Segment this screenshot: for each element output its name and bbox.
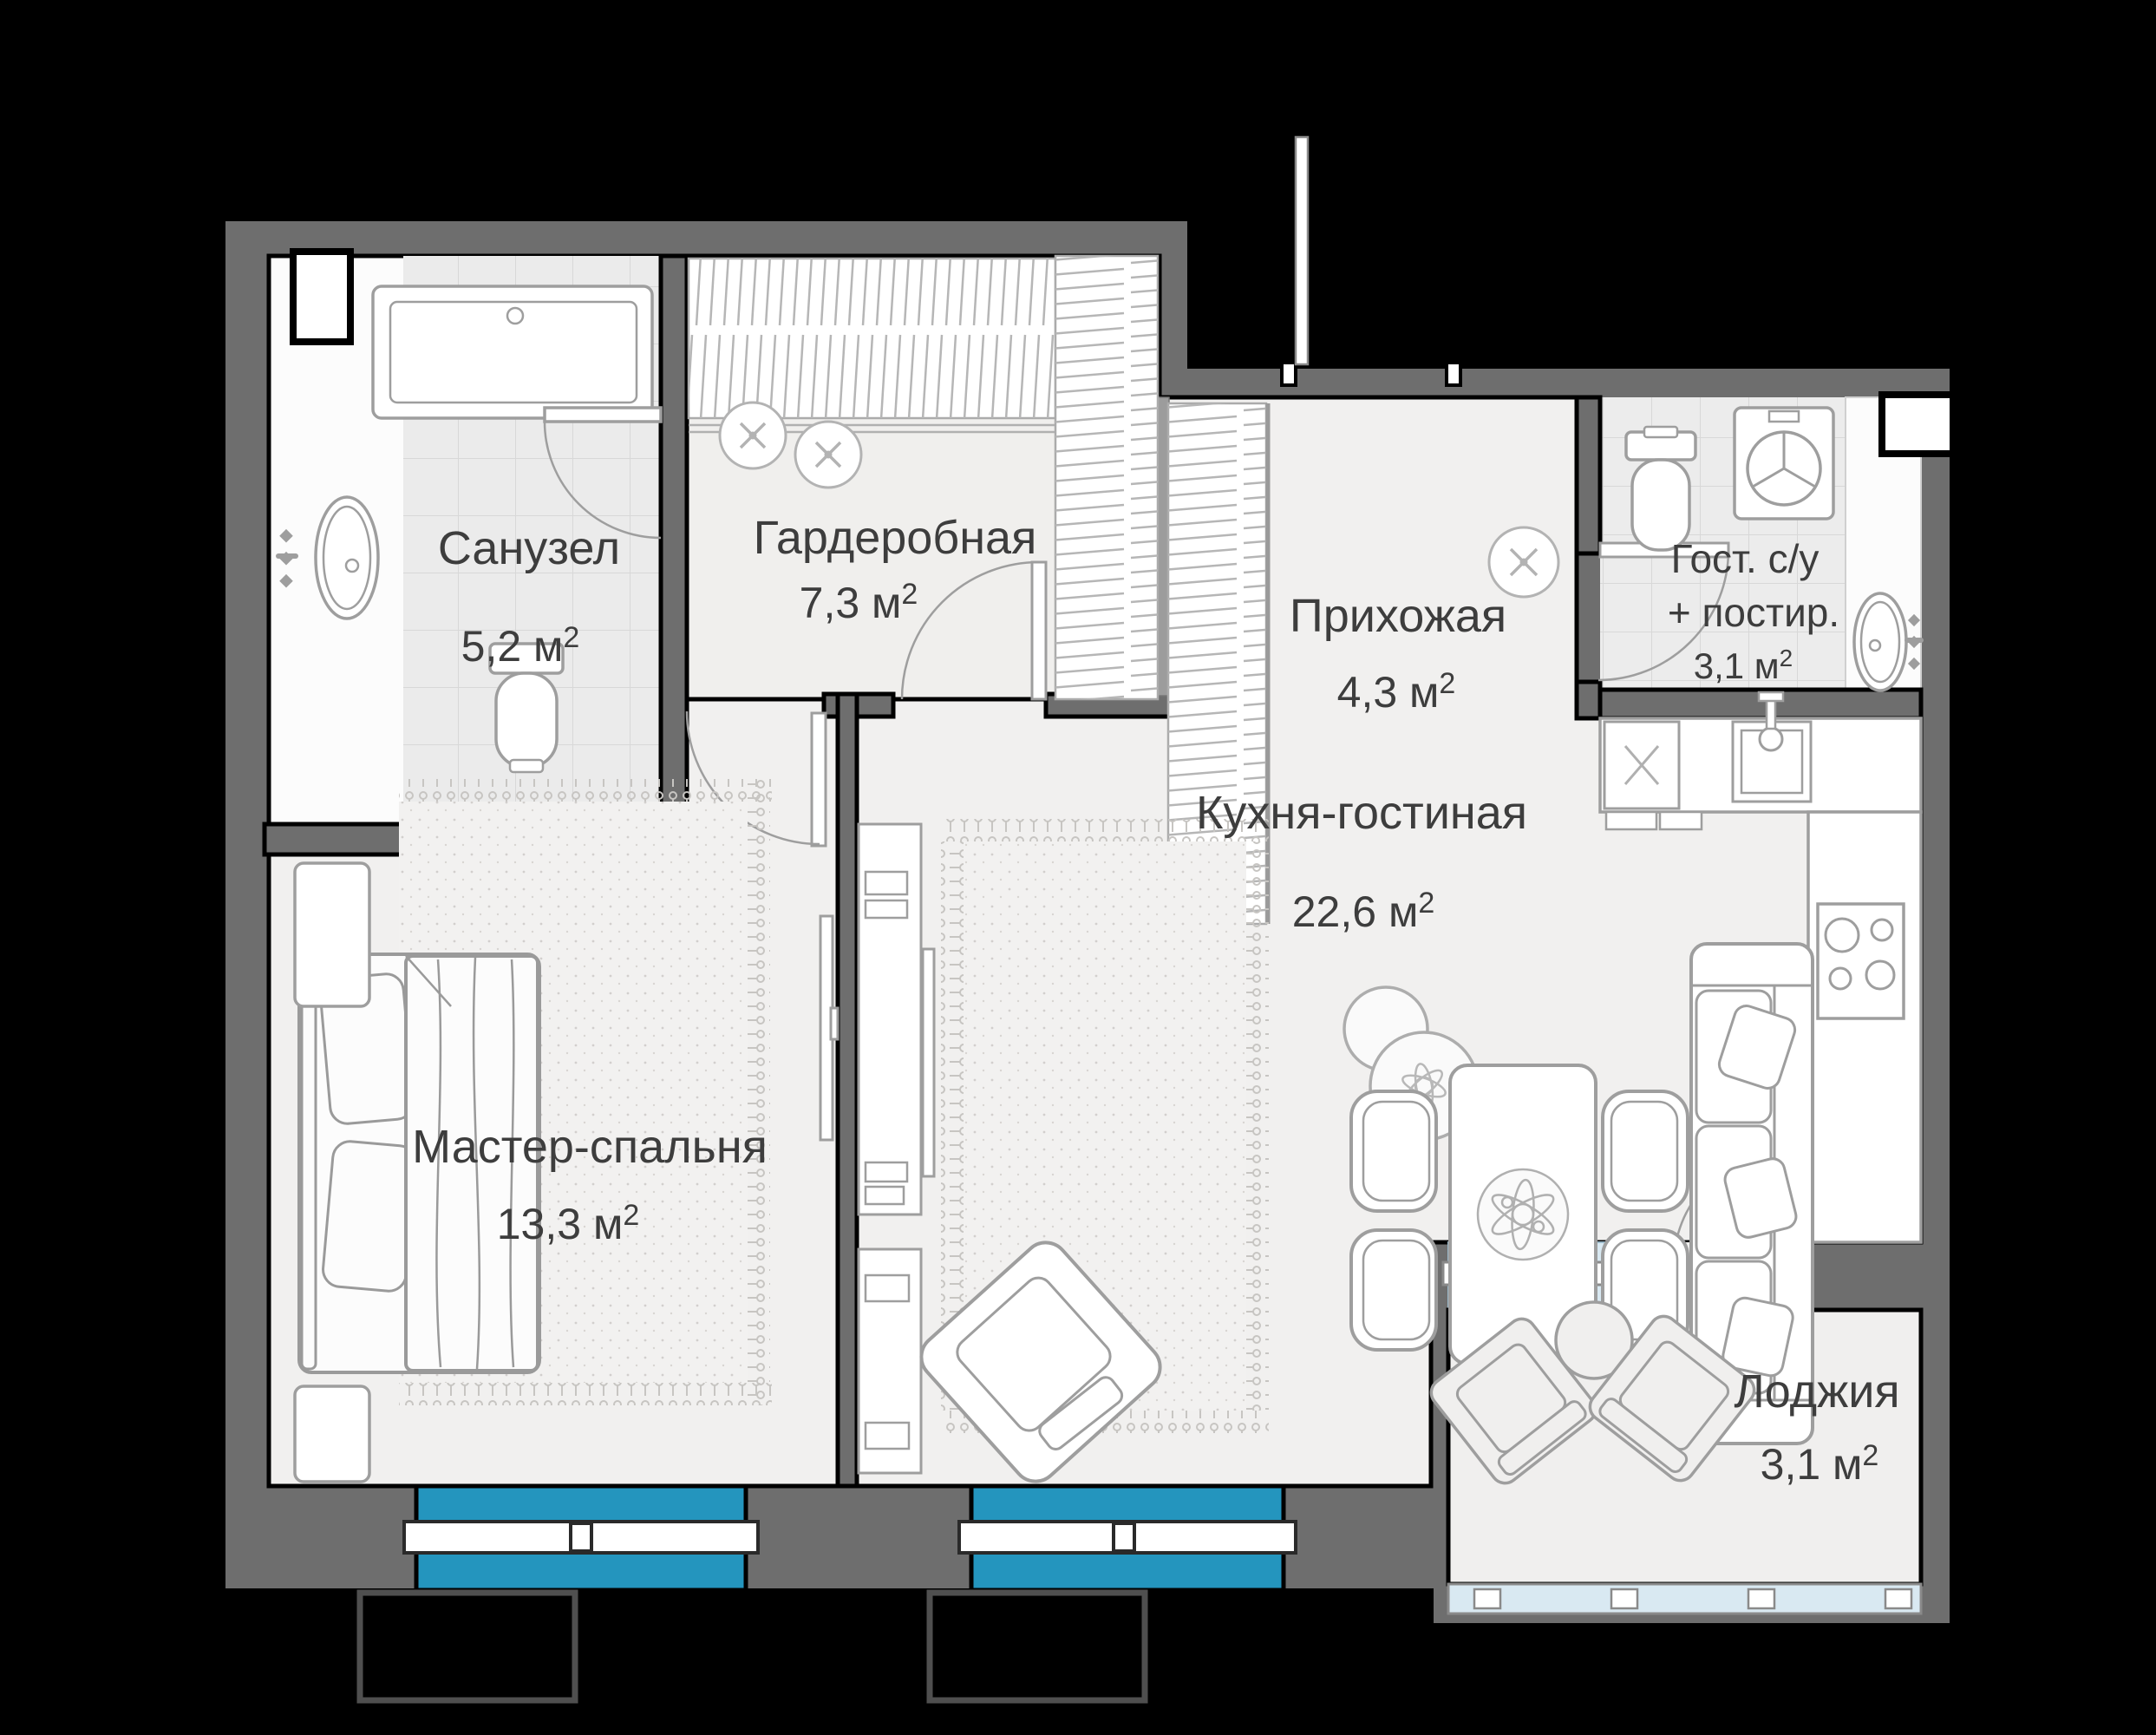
table-centerpiece bbox=[1478, 1169, 1568, 1260]
guest-toilet bbox=[1626, 427, 1695, 550]
fan-icon-wardrobe-1 bbox=[720, 403, 786, 468]
label-loggia-name: Лоджия bbox=[1734, 1365, 1899, 1417]
label-guest-wc-line1: Гост. с/у bbox=[1671, 536, 1820, 581]
label-wardrobe-name: Гардеробная bbox=[754, 512, 1037, 564]
shaft-niche-top-right bbox=[1882, 395, 1953, 454]
wardrobe-side-closet bbox=[1055, 256, 1158, 699]
bedroom-nightstand bbox=[295, 1386, 369, 1482]
dining-chair bbox=[1603, 1091, 1688, 1211]
label-bedroom-name: Мастер-спальня bbox=[412, 1121, 768, 1173]
washing-machine bbox=[1735, 408, 1833, 519]
wall-guest-wc-left-upper bbox=[1577, 397, 1600, 553]
fan-icon-wardrobe-2 bbox=[795, 422, 861, 488]
bed-pillow bbox=[322, 1140, 417, 1293]
living-window-mullion bbox=[1114, 1523, 1134, 1551]
dining-chair bbox=[1351, 1091, 1436, 1211]
label-bathroom-name: Санузел bbox=[438, 522, 620, 574]
floor-plan-svg: Санузел 5,2 м2 Гардеробная 7,3 м2 Прихож… bbox=[0, 0, 2156, 1735]
loggia-glazing-bottom bbox=[1448, 1584, 1921, 1614]
bedroom-door-leaf bbox=[812, 713, 826, 846]
wardrobe-door-leaf bbox=[1032, 562, 1046, 699]
entrance-door bbox=[1282, 137, 1460, 385]
balconies bbox=[360, 1593, 1145, 1700]
dining-chair bbox=[1351, 1230, 1436, 1350]
wall-bedroom-living-partition bbox=[838, 694, 857, 1486]
entrance-door-jamb-right bbox=[1447, 363, 1460, 385]
label-hallway-name: Прихожая bbox=[1290, 590, 1506, 642]
label-hallway-area: 4,3 м2 bbox=[1337, 667, 1456, 717]
kitchen-counter-right bbox=[1808, 812, 1921, 1242]
label-bedroom-area: 13,3 м2 bbox=[497, 1199, 640, 1248]
cooktop bbox=[1818, 904, 1904, 1018]
label-guest-wc-area: 3,1 м2 bbox=[1694, 645, 1793, 686]
label-kitchen-name: Кухня-гостиная bbox=[1196, 787, 1527, 839]
bathtub bbox=[373, 286, 652, 418]
bathtub-drain bbox=[507, 308, 523, 324]
fan-icon-hallway bbox=[1489, 527, 1558, 597]
shaft-niche-top-left bbox=[293, 252, 350, 342]
bathroom-door-leaf bbox=[545, 408, 661, 422]
label-wardrobe-area: 7,3 м2 bbox=[800, 578, 918, 627]
label-loggia-area: 3,1 м2 bbox=[1761, 1439, 1879, 1489]
label-bathroom-area: 5,2 м2 bbox=[461, 621, 580, 671]
kitchen-faucet bbox=[1760, 728, 1782, 750]
balcony-outline-left bbox=[360, 1593, 575, 1700]
bed-headboard bbox=[302, 958, 316, 1369]
bedroom-dresser bbox=[295, 863, 369, 1006]
wall-bathroom-right bbox=[661, 256, 687, 854]
floor-plan-canvas: Санузел 5,2 м2 Гардеробная 7,3 м2 Прихож… bbox=[0, 0, 2156, 1735]
label-kitchen-area: 22,6 м2 bbox=[1292, 887, 1435, 936]
lower-cabinet bbox=[859, 1249, 921, 1473]
bedroom-window bbox=[404, 1486, 758, 1590]
bedroom-window-mullion bbox=[571, 1523, 591, 1551]
living-window bbox=[959, 1486, 1296, 1590]
entrance-door-leaf bbox=[1296, 137, 1308, 364]
balcony-outline-center bbox=[930, 1593, 1145, 1700]
living-tv bbox=[923, 949, 934, 1176]
entrance-door-jamb-left bbox=[1282, 363, 1296, 385]
label-guest-wc-line2: + постир. bbox=[1668, 590, 1839, 635]
wall-guest-wc-left-lower bbox=[1577, 682, 1600, 718]
